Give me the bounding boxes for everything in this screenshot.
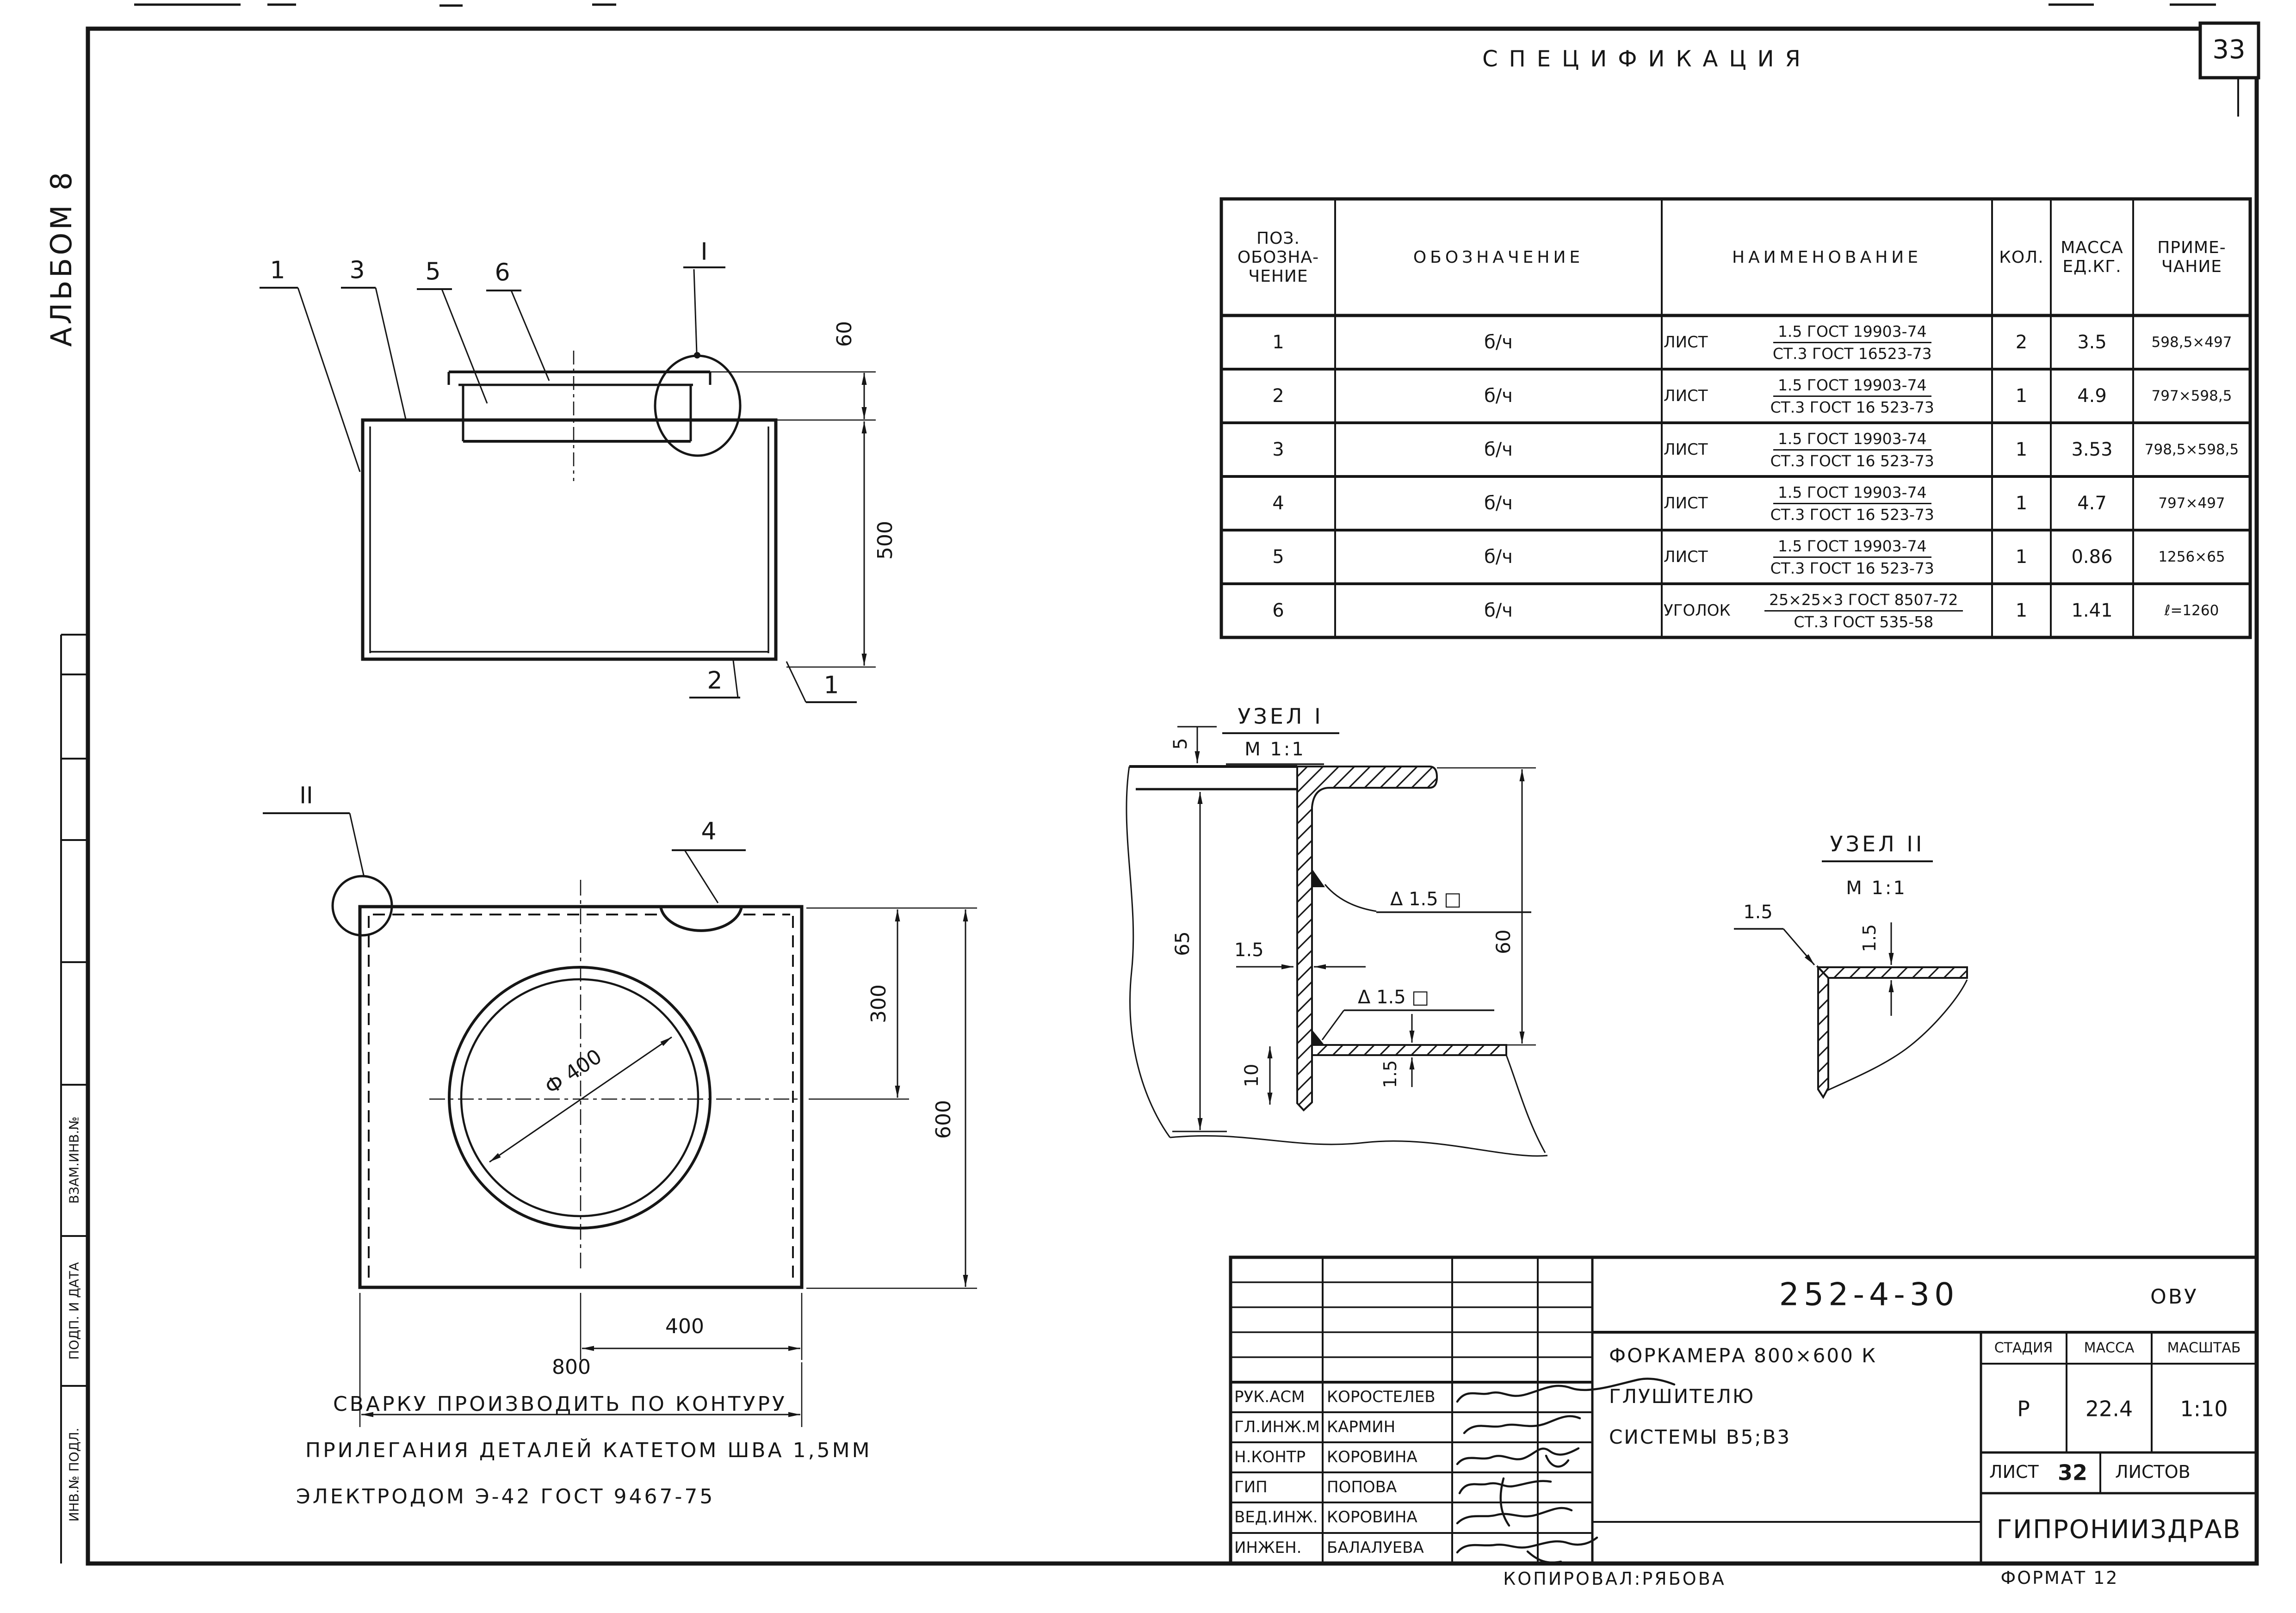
- stamp-title-line1: ФОРКАМЕРА 800×600 К: [1609, 1345, 1877, 1366]
- margin-strip: [61, 635, 88, 1564]
- stamp-stage-header: СТАДИЯ: [1994, 1341, 2053, 1356]
- spec-title: СПЕЦИФИКАЦИЯ: [1482, 47, 1812, 72]
- spec-mass: 3.53: [2051, 423, 2133, 476]
- spec-name-prefix: ЛИСТ: [1664, 548, 1708, 566]
- spec-name-prefix: ЛИСТ: [1664, 387, 1708, 405]
- stamp-code: ОВУ: [2150, 1286, 2198, 1308]
- copied-by-note: КОПИРОВАЛ:РЯБОВА: [1503, 1570, 1726, 1589]
- spec-name-bottom: СТ.3 ГОСТ 16 523-73: [1711, 504, 1994, 524]
- dim-800: 800: [552, 1356, 591, 1378]
- staff-role: ГИП: [1234, 1479, 1268, 1496]
- staff-name: БАЛАЛУЕВА: [1327, 1539, 1424, 1557]
- spec-name-fraction: 1.5 ГОСТ 19903-74СТ.3 ГОСТ 16 523-73: [1711, 376, 1994, 416]
- staff-name: КОРОВИНА: [1327, 1449, 1417, 1466]
- node2-scale: М 1:1: [1846, 878, 1907, 898]
- spec-header-qty: КОЛ.: [1992, 199, 2051, 315]
- view1-linework: [260, 267, 876, 702]
- node1-weld-top-label: Δ 1.5 □: [1390, 889, 1461, 909]
- dim-500-view1: 500: [874, 521, 897, 560]
- spec-name-top: 1.5 ГОСТ 19903-74: [1773, 483, 1931, 504]
- callout-5: 5: [425, 259, 440, 285]
- spec-name: ЛИСТ 1.5 ГОСТ 19903-74СТ.3 ГОСТ 16 523-7…: [1662, 423, 1994, 476]
- stamp-title-line2: ГЛУШИТЕЛЮ: [1609, 1386, 1755, 1407]
- callout-1-bottom: 1: [823, 672, 839, 698]
- spec-name-fraction: 1.5 ГОСТ 19903-74СТ.3 ГОСТ 16 523-73: [1711, 483, 1994, 524]
- spec-name-fraction: 1.5 ГОСТ 19903-74СТ.3 ГОСТ 16523-73: [1711, 322, 1994, 363]
- callout-6: 6: [495, 260, 510, 286]
- spec-name-top: 1.5 ГОСТ 19903-74: [1773, 537, 1931, 558]
- page-edge-marks: [134, 5, 2216, 6]
- spec-mass: 4.9: [2051, 369, 2133, 423]
- spec-mass: 0.86: [2051, 530, 2133, 584]
- spec-name-prefix: УГОЛОК: [1664, 601, 1731, 620]
- stamp-sheet-number: 32: [2058, 1461, 2087, 1485]
- spec-name: ЛИСТ 1.5 ГОСТ 19903-74СТ.3 ГОСТ 16 523-7…: [1662, 369, 1994, 423]
- stamp-stage-value: Р: [2017, 1397, 2030, 1421]
- drawing-sheet: АЛЬБОМ 8 33 ВЗАМ.ИНВ.№ ПОДП. И ДАТА ИНВ.…: [0, 0, 2296, 1613]
- staff-role: ГЛ.ИНЖ.М: [1234, 1419, 1320, 1436]
- detail-ref-1: I: [700, 239, 707, 265]
- spec-name-bottom: СТ.3 ГОСТ 16523-73: [1711, 343, 1994, 363]
- stamp-organization: ГИПРОНИИЗДРАВ: [1997, 1515, 2241, 1544]
- spec-note: 797×497: [2133, 476, 2250, 530]
- spec-header-pos: ПОЗ. ОБОЗНА- ЧЕНИЕ: [1221, 199, 1335, 315]
- spec-header-name: НАИМЕНОВАНИЕ: [1662, 199, 1992, 315]
- node1-dim-wall: 1.5: [1234, 940, 1264, 960]
- spec-header-note: ПРИМЕ- ЧАНИЕ: [2133, 199, 2250, 315]
- callout-1-top: 1: [270, 257, 285, 284]
- stamp-sheets-label: ЛИСТОВ: [2115, 1463, 2191, 1482]
- spec-name-top: 1.5 ГОСТ 19903-74: [1773, 376, 1931, 397]
- node2-dim-15: 1.5: [1860, 924, 1880, 952]
- stamp-mass-header: МАССА: [2084, 1341, 2135, 1356]
- spec-designation: б/ч: [1335, 369, 1662, 423]
- spec-name-bottom: СТ.3 ГОСТ 16 523-73: [1711, 558, 1994, 577]
- margin-label-inv: ИНВ.№ ПОДЛ.: [68, 1428, 82, 1521]
- spec-qty: 2: [1992, 315, 2051, 369]
- spec-name-top: 1.5 ГОСТ 19903-74: [1773, 322, 1931, 343]
- spec-qty: 1: [1992, 369, 2051, 423]
- stamp-title-line3: СИСТЕМЫ В5;В3: [1609, 1427, 1791, 1448]
- margin-label-podp: ПОДП. И ДАТА: [68, 1262, 82, 1360]
- stamp-scale-header: МАСШТАБ: [2167, 1341, 2241, 1356]
- node1-dim-10: 10: [1242, 1064, 1262, 1088]
- stamp-sheet-label: ЛИСТ: [1989, 1463, 2039, 1482]
- node1-title: УЗЕЛ I: [1238, 705, 1323, 729]
- spec-name: ЛИСТ 1.5 ГОСТ 19903-74СТ.3 ГОСТ 16 523-7…: [1662, 530, 1994, 584]
- format-note: ФОРМАТ 12: [2001, 1569, 2119, 1588]
- page-number: 33: [2212, 36, 2245, 64]
- spec-name: ЛИСТ 1.5 ГОСТ 19903-74СТ.3 ГОСТ 16523-73: [1662, 315, 1994, 369]
- spec-pos: 5: [1221, 530, 1335, 584]
- spec-qty: 1: [1992, 476, 2051, 530]
- callout-2: 2: [707, 667, 722, 694]
- spec-designation: б/ч: [1335, 584, 1662, 637]
- spec-mass: 1.41: [2051, 584, 2133, 637]
- detail-ref-2: II: [299, 783, 313, 809]
- spec-note: 598,5×497: [2133, 315, 2250, 369]
- weld-note-line1: СВАРКУ ПРОИЗВОДИТЬ ПО КОНТУРУ: [333, 1393, 787, 1415]
- spec-name-prefix: ЛИСТ: [1664, 333, 1708, 352]
- spec-mass: 4.7: [2051, 476, 2133, 530]
- node1-weld-bottom-label: Δ 1.5 □: [1358, 987, 1429, 1007]
- spec-name-top: 25×25×3 ГОСТ 8507-72: [1764, 591, 1962, 612]
- node1-dim-60: 60: [1493, 929, 1514, 954]
- spec-name-bottom: СТ.3 ГОСТ 16 523-73: [1711, 451, 1994, 470]
- spec-note: ℓ=1260: [2133, 584, 2250, 637]
- dim-60-view1: 60: [834, 321, 856, 347]
- weld-note-line3: ЭЛЕКТРОДОМ Э-42 ГОСТ 9467-75: [296, 1486, 715, 1508]
- spec-designation: б/ч: [1335, 423, 1662, 476]
- spec-designation: б/ч: [1335, 476, 1662, 530]
- callout-4: 4: [701, 818, 716, 845]
- staff-name: КОРОВИНА: [1327, 1509, 1417, 1526]
- spec-pos: 2: [1221, 369, 1335, 423]
- callout-3: 3: [349, 257, 365, 284]
- staff-role: РУК.АСМ: [1234, 1389, 1305, 1406]
- spec-header-mass: МАССА ЕД.КГ.: [2051, 199, 2133, 315]
- spec-note: 798,5×598,5: [2133, 423, 2250, 476]
- spec-name-bottom: СТ.3 ГОСТ 535-58: [1733, 612, 1994, 631]
- node1-scale: М 1:1: [1244, 739, 1306, 760]
- view2-linework: [263, 813, 977, 1427]
- dim-400: 400: [665, 1316, 704, 1338]
- staff-role: Н.КОНТР: [1234, 1449, 1306, 1466]
- spec-name-bottom: СТ.3 ГОСТ 16 523-73: [1711, 397, 1994, 416]
- staff-role: ИНЖЕН.: [1234, 1539, 1301, 1557]
- spec-name: УГОЛОК 25×25×3 ГОСТ 8507-72СТ.3 ГОСТ 535…: [1662, 584, 1994, 637]
- spec-pos: 4: [1221, 476, 1335, 530]
- spec-qty: 1: [1992, 584, 2051, 637]
- margin-label-vzam: ВЗАМ.ИНВ.№: [68, 1117, 82, 1204]
- staff-role: ВЕД.ИНЖ.: [1234, 1509, 1318, 1526]
- spec-designation: б/ч: [1335, 315, 1662, 369]
- spec-name-prefix: ЛИСТ: [1664, 494, 1708, 513]
- spec-pos: 3: [1221, 423, 1335, 476]
- spec-name-fraction: 25×25×3 ГОСТ 8507-72СТ.3 ГОСТ 535-58: [1733, 591, 1994, 631]
- spec-qty: 1: [1992, 530, 2051, 584]
- stamp-doc-number: 252-4-30: [1779, 1278, 1959, 1313]
- spec-name-prefix: ЛИСТ: [1664, 440, 1708, 459]
- node1-dim-65: 65: [1172, 931, 1193, 956]
- spec-designation: б/ч: [1335, 530, 1662, 584]
- stamp-mass-value: 22.4: [2086, 1397, 2133, 1421]
- staff-name: КАРМИН: [1327, 1419, 1395, 1436]
- spec-mass: 3.5: [2051, 315, 2133, 369]
- node1-dim-5: 5: [1170, 738, 1191, 749]
- spec-name-fraction: 1.5 ГОСТ 19903-74СТ.3 ГОСТ 16 523-73: [1711, 430, 1994, 470]
- node2-weld-label: 1.5: [1743, 902, 1773, 922]
- node1-dim-sheet: 1.5: [1381, 1060, 1400, 1088]
- spec-name-top: 1.5 ГОСТ 19903-74: [1773, 430, 1931, 451]
- dim-600: 600: [933, 1100, 955, 1139]
- spec-name: ЛИСТ 1.5 ГОСТ 19903-74СТ.3 ГОСТ 16 523-7…: [1662, 476, 1994, 530]
- spec-note: 797×598,5: [2133, 369, 2250, 423]
- dim-300: 300: [868, 984, 890, 1023]
- staff-name: ПОПОВА: [1327, 1479, 1397, 1496]
- spec-header-designation: ОБОЗНАЧЕНИЕ: [1335, 199, 1662, 315]
- spec-qty: 1: [1992, 423, 2051, 476]
- stamp-scale-value: 1:10: [2180, 1397, 2228, 1421]
- spec-note: 1256×65: [2133, 530, 2250, 584]
- spec-pos: 1: [1221, 315, 1335, 369]
- weld-note-line2: ПРИЛЕГАНИЯ ДЕТАЛЕЙ КАТЕТОМ ШВА 1,5ММ: [305, 1440, 872, 1462]
- staff-name: КОРОСТЕЛЕВ: [1327, 1389, 1436, 1406]
- spec-name-fraction: 1.5 ГОСТ 19903-74СТ.3 ГОСТ 16 523-73: [1711, 537, 1994, 577]
- album-label: АЛЬБОМ 8: [46, 169, 77, 347]
- node2-title: УЗЕЛ II: [1830, 833, 1925, 856]
- spec-pos: 6: [1221, 584, 1335, 637]
